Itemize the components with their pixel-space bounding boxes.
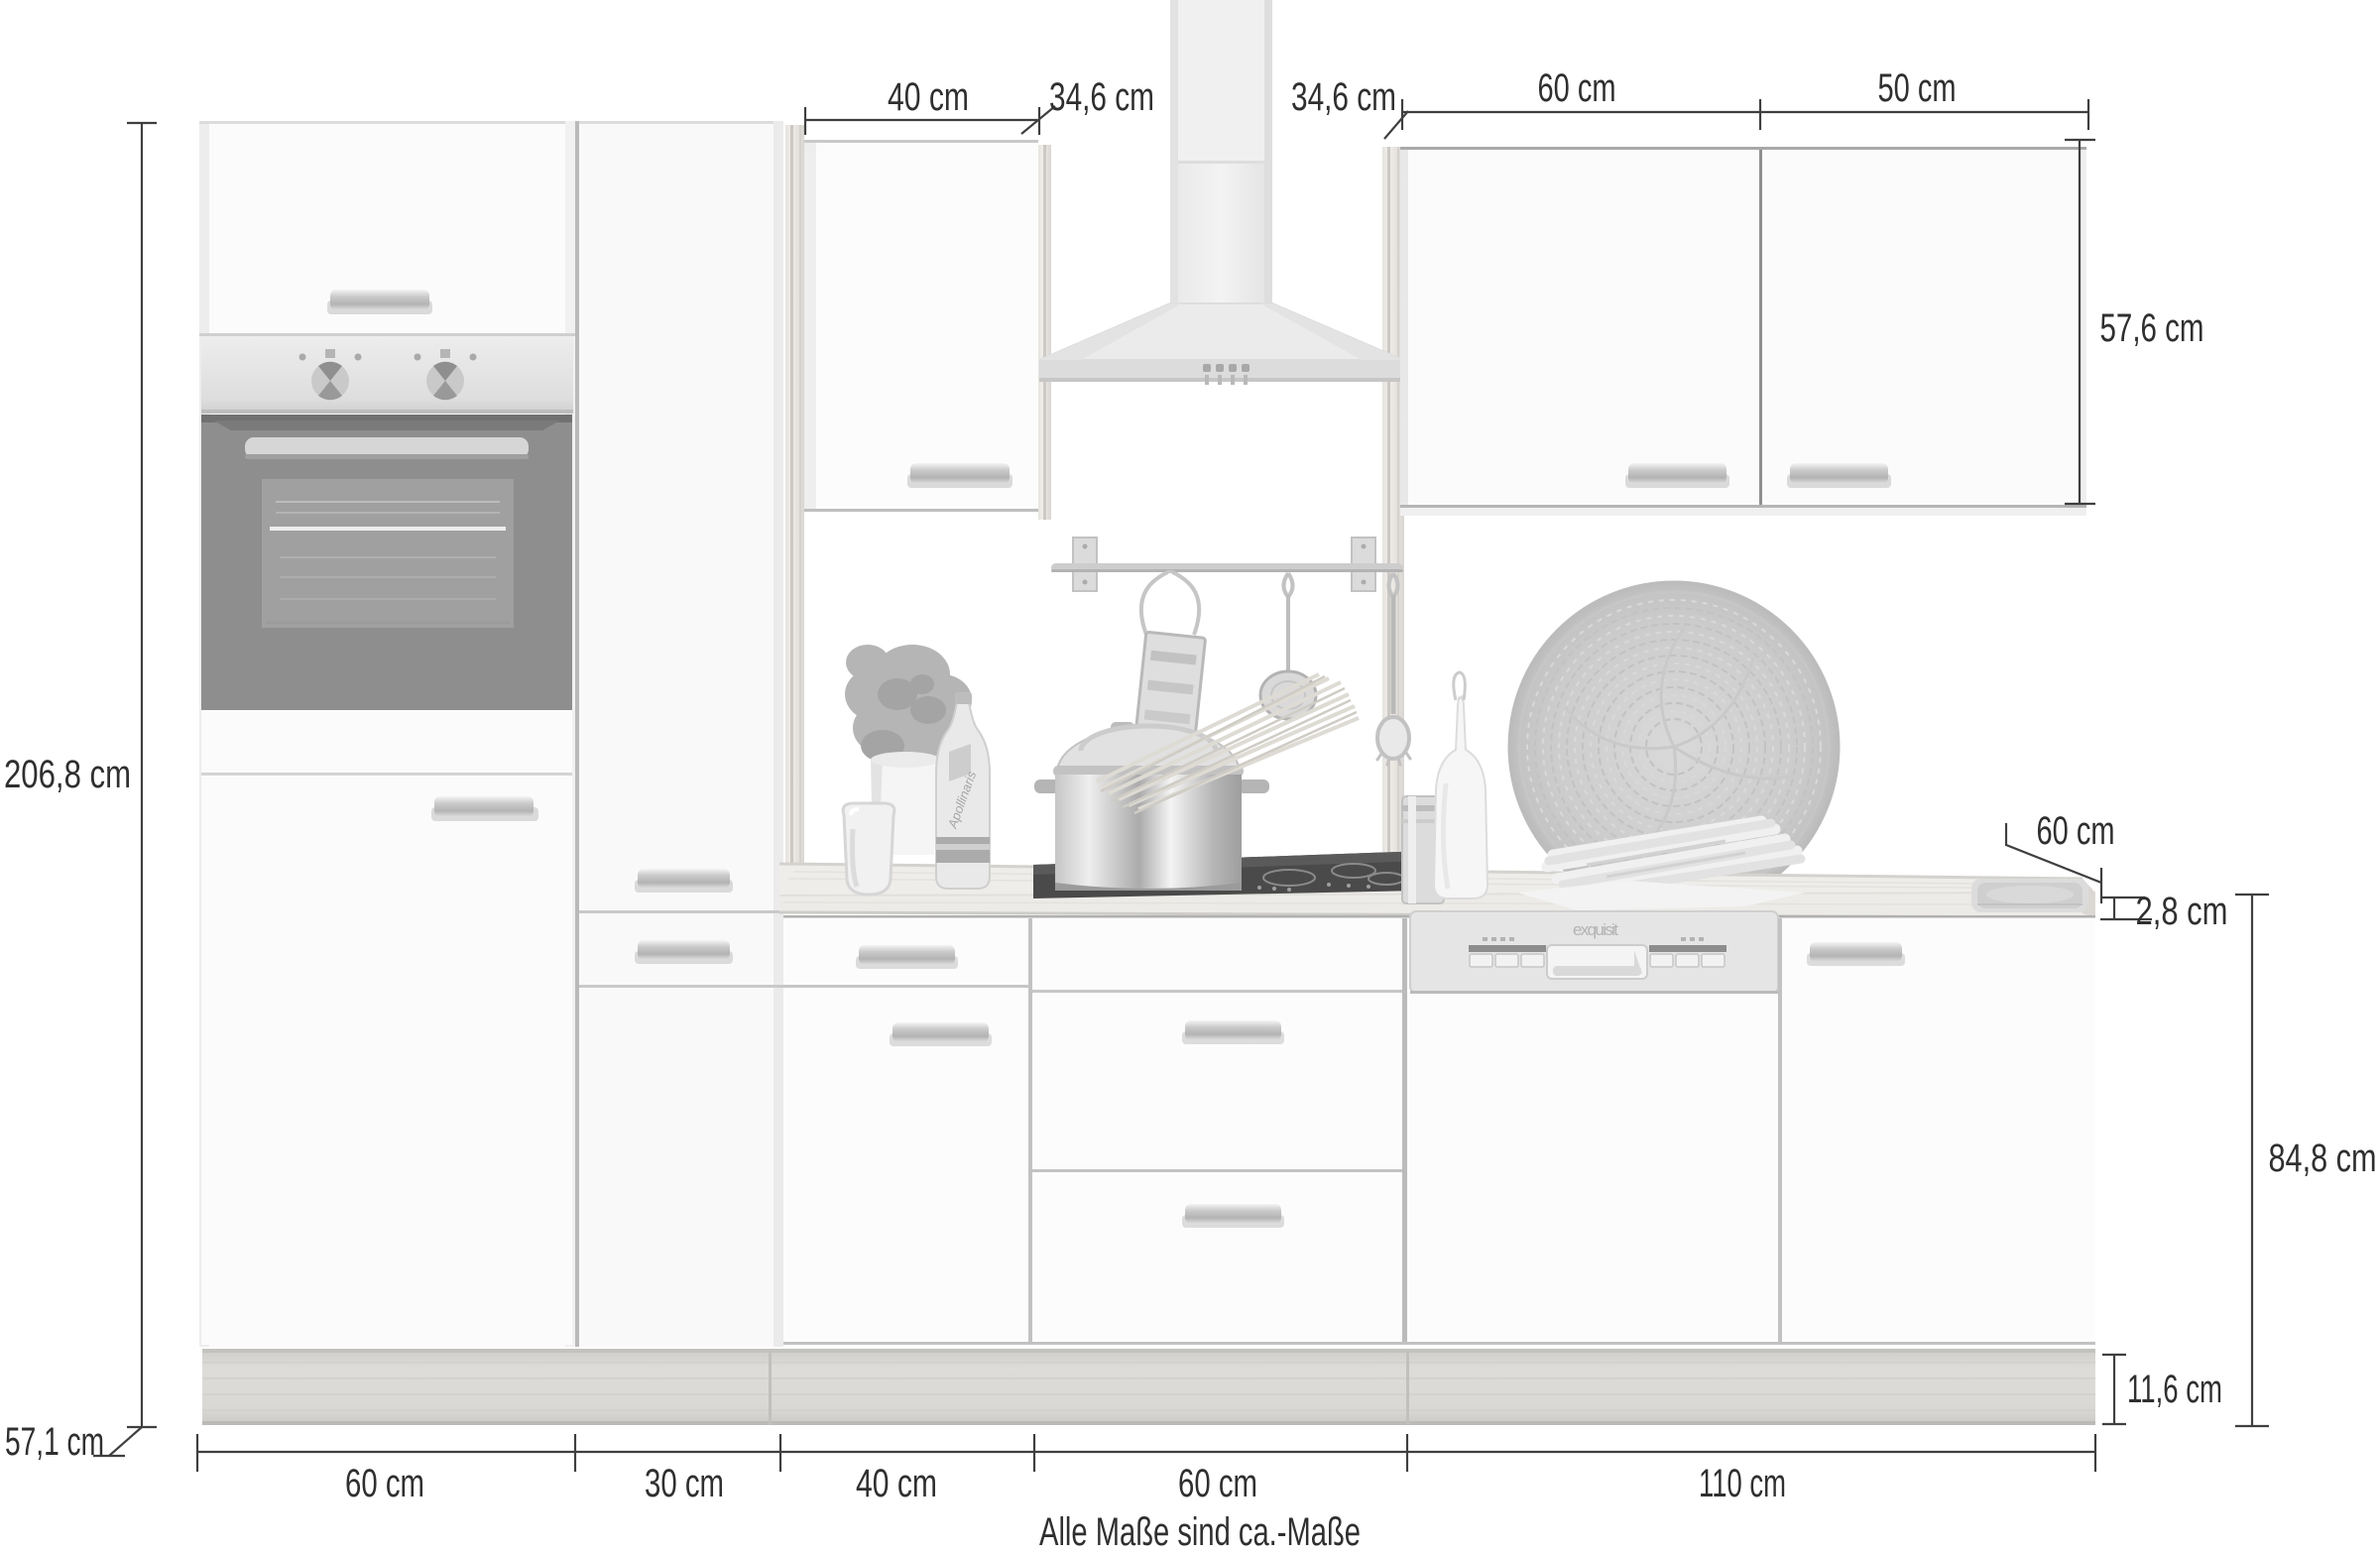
svg-text:Alle Maße sind ca.-Maße: Alle Maße sind ca.-Maße: [1039, 1510, 1361, 1554]
svg-text:60 cm: 60 cm: [1538, 66, 1616, 110]
svg-text:206,8 cm: 206,8 cm: [4, 753, 131, 796]
svg-text:exquisit: exquisit: [1573, 920, 1618, 939]
svg-text:40 cm: 40 cm: [856, 1462, 937, 1505]
svg-text:110 cm: 110 cm: [1699, 1462, 1786, 1505]
svg-text:34,6 cm: 34,6 cm: [1049, 75, 1154, 119]
svg-text:57,1 cm: 57,1 cm: [5, 1420, 104, 1464]
svg-text:30 cm: 30 cm: [645, 1462, 724, 1505]
svg-text:84,8 cm: 84,8 cm: [2269, 1136, 2377, 1180]
svg-text:57,6 cm: 57,6 cm: [2100, 306, 2204, 350]
svg-text:60 cm: 60 cm: [1178, 1462, 1257, 1505]
svg-text:60 cm: 60 cm: [2037, 809, 2115, 853]
svg-text:50 cm: 50 cm: [1878, 66, 1957, 110]
svg-text:2,8 cm: 2,8 cm: [2136, 890, 2228, 933]
svg-text:11,6 cm: 11,6 cm: [2127, 1368, 2222, 1411]
svg-text:34,6 cm: 34,6 cm: [1291, 75, 1396, 119]
svg-text:40 cm: 40 cm: [888, 75, 969, 119]
svg-text:60 cm: 60 cm: [345, 1462, 424, 1505]
